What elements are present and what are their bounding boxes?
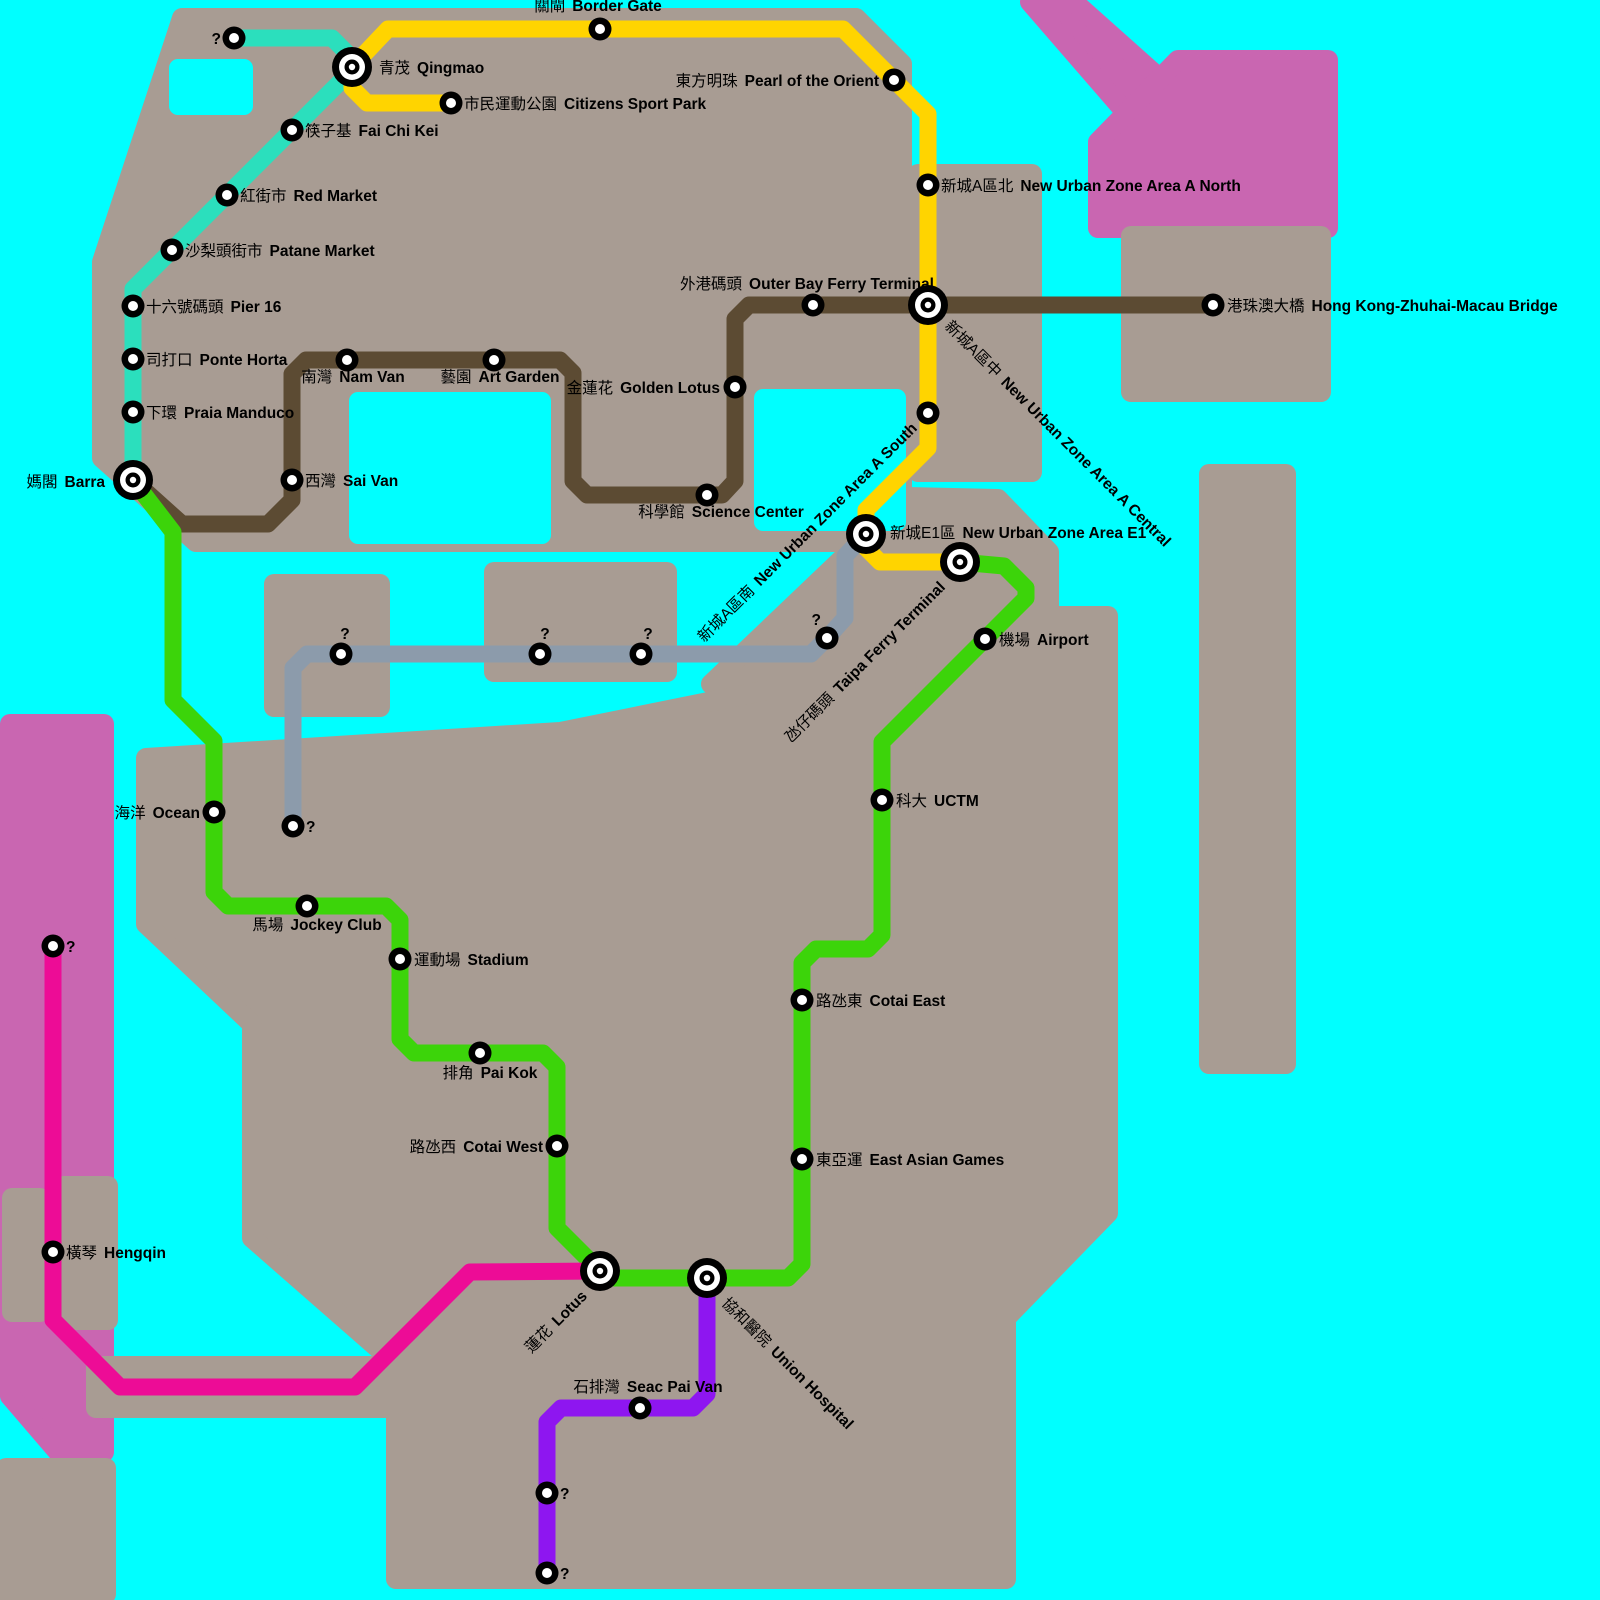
station-name-en: Sai Van [343, 473, 398, 490]
station-name-zh: 南灣 [301, 368, 332, 386]
station-label-unknown-hengqin-north: ? [66, 939, 75, 956]
station-label-pai-kok: 排角Pai Kok [443, 1064, 538, 1082]
station-name-zh: 東亞運 [816, 1151, 863, 1169]
station-marker-dot [797, 995, 807, 1005]
station-marker-dot [446, 98, 456, 108]
station-name-zh: 海洋 [115, 804, 146, 822]
station-label-pearl-of-the-orient: 東方明珠Pearl of the Orient [676, 72, 879, 90]
station-name-en: Science Center [692, 504, 804, 521]
station-label-unknown-taipa-mid: ? [540, 626, 549, 643]
station-name-zh: 外港碼頭 [680, 275, 743, 293]
interchange-marker-dot [349, 64, 355, 70]
station-marker-dot [287, 475, 297, 485]
station-name-en: ? [643, 626, 652, 643]
station-name-en: Golden Lotus [620, 380, 720, 397]
station-name-zh: 東方明珠 [676, 72, 739, 90]
station-marker-dot [167, 245, 177, 255]
station-name-en: Qingmao [417, 60, 484, 77]
station-name-zh: 路氹東 [816, 992, 863, 1010]
station-name-zh: 馬場 [252, 916, 283, 934]
station-name-en: Fai Chi Kei [359, 123, 439, 140]
interchange-marker-dot [597, 1268, 603, 1274]
station-label-stadium: 運動場Stadium [414, 951, 529, 969]
station-name-zh: 金蓮花 [567, 379, 614, 397]
station-marker-dot [552, 1141, 562, 1151]
station-name-zh: 紅街市 [240, 187, 287, 205]
station-label-patane-market: 沙梨頭街市Patane Market [185, 242, 375, 260]
station-label-ocean: 海洋Ocean [115, 804, 200, 822]
interchange-marker-dot [130, 477, 136, 483]
station-label-east-asian-games: 東亞運East Asian Games [816, 1151, 1004, 1169]
station-name-en: Pai Kok [481, 1065, 538, 1082]
interchange-marker-dot [957, 559, 963, 565]
station-marker-dot [287, 125, 297, 135]
station-name-en: Seac Pai Van [627, 1379, 723, 1396]
station-name-zh: 筷子基 [305, 122, 352, 140]
nam-van-lake-west [358, 401, 542, 535]
station-label-seac-pai-van: 石排灣Seac Pai Van [573, 1378, 722, 1396]
station-name-en: UCTM [934, 793, 979, 810]
station-marker-dot [595, 24, 605, 34]
station-label-red-market: 紅街市Red Market [240, 187, 377, 205]
station-name-en: Hengqin [104, 1245, 166, 1262]
station-marker-dot [535, 649, 545, 659]
station-name-zh: 運動場 [414, 951, 461, 969]
station-name-en: Patane Market [270, 243, 375, 260]
station-label-barra: 媽閣Barra [26, 473, 105, 491]
station-name-en: ? [66, 939, 75, 956]
interchange-marker-dot [925, 302, 931, 308]
station-name-en: Jockey Club [290, 917, 381, 934]
station-name-en: New Urban Zone Area A North [1020, 178, 1240, 195]
station-label-cotai-east: 路氹東Cotai East [816, 992, 945, 1010]
station-marker-dot [128, 407, 138, 417]
interchange-marker-dot [704, 1275, 710, 1281]
station-name-zh: 港珠澳大橋 [1227, 297, 1305, 315]
station-name-en: Airport [1037, 632, 1089, 649]
station-name-en: Praia Manduco [184, 405, 294, 422]
station-name-en: ? [306, 819, 315, 836]
station-name-zh: 市民運動公園 [464, 95, 557, 113]
station-name-en: Red Market [294, 188, 378, 205]
station-label-pier-16: 十六號碼頭Pier 16 [146, 298, 282, 316]
station-name-en: East Asian Games [870, 1152, 1005, 1169]
station-marker-dot [342, 355, 352, 365]
station-marker-dot [222, 190, 232, 200]
station-name-en: ? [560, 1486, 569, 1503]
station-name-zh: 橫琴 [66, 1244, 97, 1262]
station-name-en: Pier 16 [231, 299, 282, 316]
coloane-southwest-patch [6, 1468, 106, 1594]
station-label-qingmao: 青茂Qingmao [379, 59, 484, 77]
station-name-zh: 沙梨頭街市 [185, 242, 263, 260]
station-name-en: Nam Van [339, 369, 404, 386]
station-label-unknown-bend: ? [812, 612, 821, 629]
station-name-zh: 機場 [999, 631, 1030, 649]
station-name-en: Hong Kong-Zhuhai-Macau Bridge [1312, 298, 1559, 315]
station-marker-dot [923, 408, 933, 418]
station-name-zh: 新城E1區 [890, 524, 955, 542]
station-name-en: ? [340, 626, 349, 643]
station-name-en: Outer Bay Ferry Terminal [749, 276, 934, 293]
station-name-zh: 石排灣 [573, 1378, 620, 1396]
station-label-unknown-taipa-west: ? [340, 626, 349, 643]
station-marker-dot [288, 821, 298, 831]
station-label-science-center: 科學館Science Center [638, 502, 804, 521]
station-name-en: New Urban Zone Area E1 [962, 525, 1146, 542]
station-marker-dot [822, 633, 832, 643]
station-name-zh: 青茂 [379, 59, 410, 77]
station-label-new-urban-zone-area-e1: 新城E1區New Urban Zone Area E1 [890, 524, 1147, 542]
east-island-strip [1209, 474, 1286, 1064]
station-label-ponte-horta: 司打口Ponte Horta [146, 351, 288, 369]
station-marker-dot [48, 941, 58, 951]
station-name-zh: 關閘 [534, 0, 565, 15]
station-name-zh: 西灣 [305, 472, 336, 490]
station-label-unknown-coloane-mid: ? [560, 1486, 569, 1503]
station-name-en: Ocean [153, 805, 200, 822]
station-marker-dot [636, 649, 646, 659]
station-marker-dot [542, 1488, 552, 1498]
station-marker-dot [797, 1154, 807, 1164]
station-marker-dot [542, 1568, 552, 1578]
hengqin-patch-a [12, 1198, 40, 1312]
station-name-en: Citizens Sport Park [564, 96, 706, 113]
station-label-unknown-taipa-east: ? [643, 626, 652, 643]
station-marker-dot [475, 1048, 485, 1058]
station-label-airport: 機場Airport [999, 631, 1089, 649]
station-marker-dot [730, 382, 740, 392]
station-marker-dot [980, 634, 990, 644]
station-label-nam-van: 南灣Nam Van [301, 368, 405, 386]
station-label-uctm: 科大UCTM [896, 792, 979, 810]
station-marker-dot [336, 649, 346, 659]
station-marker-dot [1208, 300, 1218, 310]
station-label-citizens-sport-park: 市民運動公園Citizens Sport Park [464, 95, 707, 113]
station-label-hengqin: 橫琴Hengqin [66, 1244, 166, 1262]
station-name-en: Cotai East [870, 993, 946, 1010]
station-name-zh: 排角 [443, 1064, 474, 1082]
station-label-golden-lotus: 金蓮花Golden Lotus [567, 379, 720, 397]
station-marker-dot [923, 180, 933, 190]
station-label-hong-kong-zhuhai-macau-bridge: 港珠澳大橋Hong Kong-Zhuhai-Macau Bridge [1227, 297, 1558, 315]
station-marker-dot [302, 901, 312, 911]
station-name-en: Stadium [468, 952, 529, 969]
station-marker-dot [808, 300, 818, 310]
station-label-outer-bay-ferry-terminal: 外港碼頭Outer Bay Ferry Terminal [680, 275, 934, 293]
station-label-unknown-northwest: ? [212, 31, 221, 48]
peninsula-notch [178, 68, 244, 106]
metro-map-canvas: ?青茂Qingmao筷子基Fai Chi Kei紅街市Red Market沙梨頭… [0, 0, 1600, 1600]
station-name-en: ? [212, 31, 221, 48]
station-marker-dot [128, 301, 138, 311]
station-marker-dot [128, 354, 138, 364]
station-marker-dot [229, 33, 239, 43]
station-marker-dot [889, 75, 899, 85]
station-name-en: Art Garden [479, 369, 560, 386]
station-name-zh: 藝園 [441, 368, 472, 386]
transit-map-screen: ?青茂Qingmao筷子基Fai Chi Kei紅街市Red Market沙梨頭… [0, 0, 1600, 1600]
station-label-fai-chi-kei: 筷子基Fai Chi Kei [305, 122, 439, 140]
station-name-en: ? [540, 626, 549, 643]
station-name-zh: 科學館 [638, 502, 685, 521]
station-name-zh: 媽閣 [26, 473, 57, 491]
station-marker-dot [489, 355, 499, 365]
station-marker-dot [209, 807, 219, 817]
station-label-art-garden: 藝園Art Garden [441, 368, 560, 386]
station-name-zh: 科大 [896, 792, 927, 810]
station-label-praia-manduco: 下環Praia Manduco [146, 405, 294, 422]
station-name-en: Ponte Horta [200, 352, 288, 369]
station-marker-dot [702, 490, 712, 500]
interchange-marker-dot [863, 531, 869, 537]
station-label-unknown-south-terminus: ? [306, 819, 315, 836]
station-name-zh: 路氹西 [410, 1138, 457, 1156]
station-name-en: Border Gate [572, 0, 662, 15]
station-marker-dot [635, 1403, 645, 1413]
station-label-jockey-club: 馬場Jockey Club [252, 916, 381, 934]
station-name-en: ? [560, 1566, 569, 1583]
station-label-new-urban-zone-area-a-north: 新城A區北New Urban Zone Area A North [941, 177, 1241, 195]
station-name-en: Cotai West [463, 1139, 543, 1156]
station-marker-dot [48, 1247, 58, 1257]
station-marker-dot [877, 795, 887, 805]
station-name-en: Pearl of the Orient [745, 73, 879, 90]
station-marker-dot [395, 954, 405, 964]
station-name-zh: 下環 [146, 405, 177, 422]
station-label-sai-van: 西灣Sai Van [305, 472, 398, 490]
station-label-unknown-coloane-south: ? [560, 1566, 569, 1583]
station-name-zh: 新城A區北 [941, 177, 1014, 195]
station-label-border-gate: 關閘Border Gate [534, 0, 662, 15]
station-name-en: Barra [65, 474, 106, 491]
station-name-zh: 司打口 [146, 351, 193, 369]
station-name-en: ? [812, 612, 821, 629]
station-label-cotai-west: 路氹西Cotai West [410, 1138, 543, 1156]
station-name-zh: 十六號碼頭 [146, 298, 224, 316]
